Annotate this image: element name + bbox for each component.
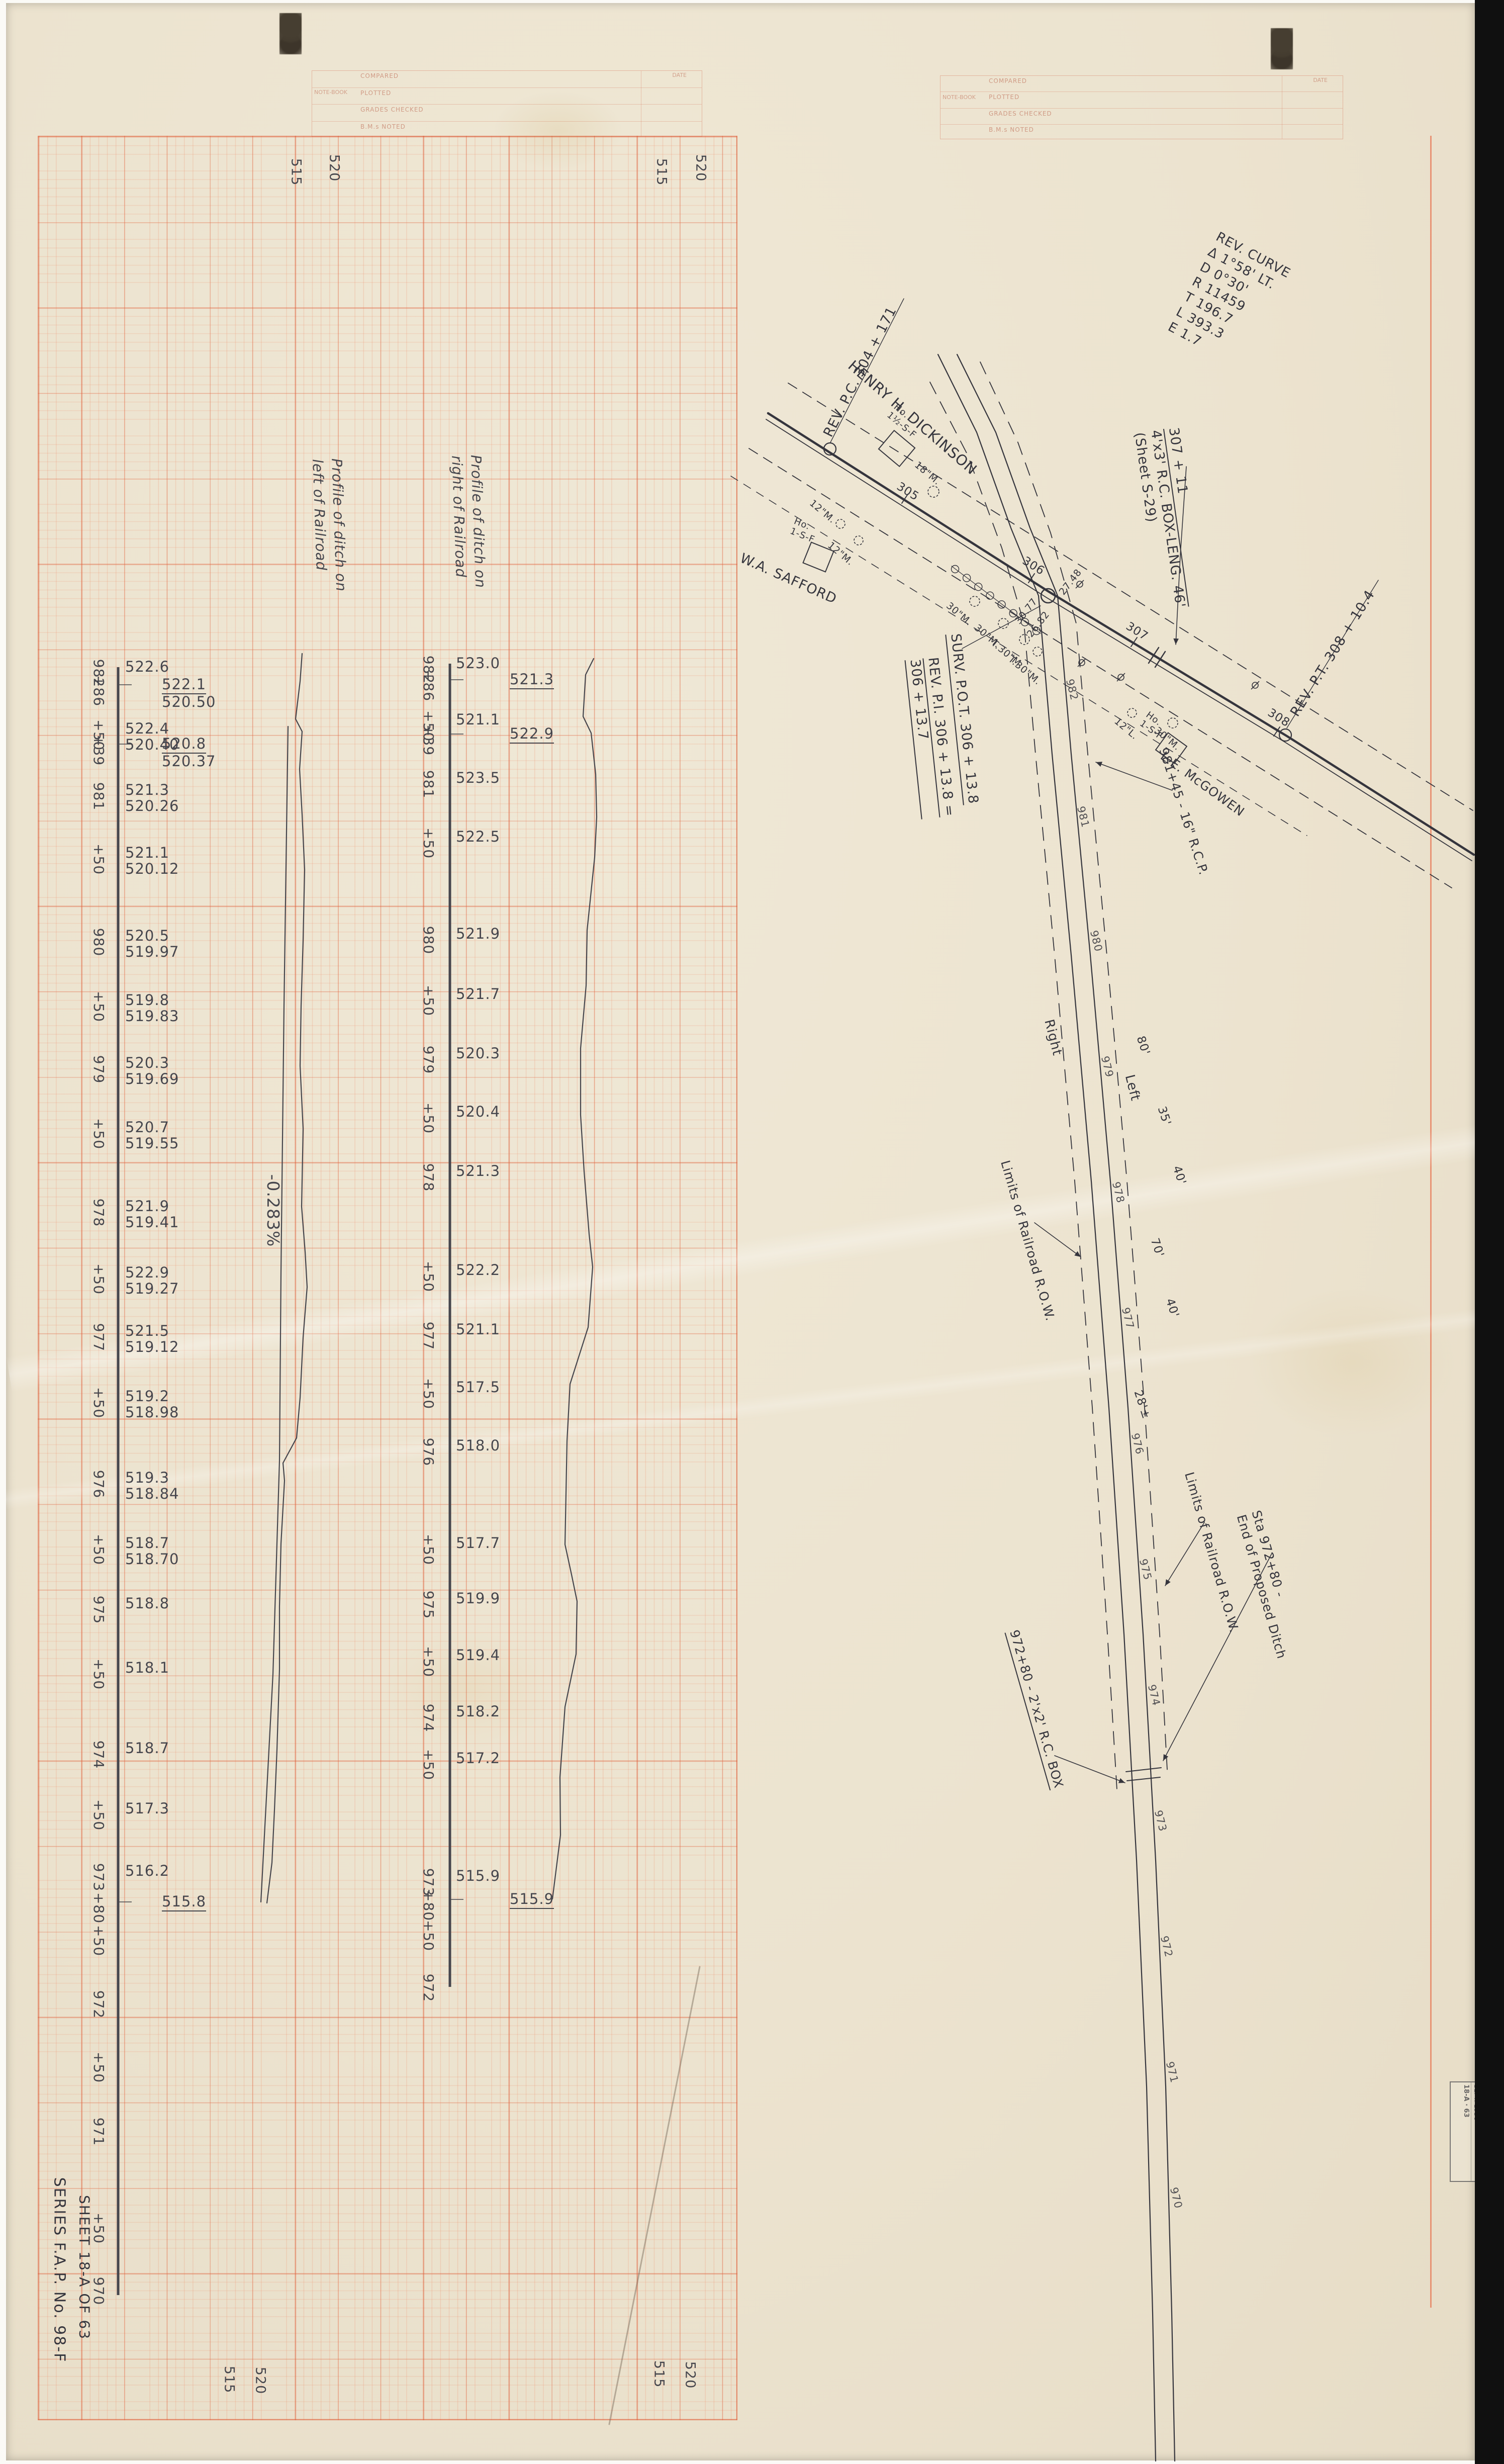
rr-track-main (768, 413, 1474, 855)
elevation-values-right: 515.9 (510, 1891, 554, 1909)
station-label-right: 977 (420, 1322, 437, 1350)
elevation-values-right: 520.4 (456, 1104, 500, 1120)
station-label-right: 978 (420, 1163, 437, 1192)
elevation-values-left: 520.7519.55 (125, 1120, 179, 1152)
elevation-values-right: 520.3 (456, 1046, 500, 1062)
station-label-left: 978 (90, 1199, 107, 1227)
ground-profile-line-right (552, 659, 597, 1899)
drawing-layer (0, 0, 1504, 2464)
elevation-values-left: 516.2 (125, 1863, 169, 1879)
station-label-right: +50 (420, 1749, 437, 1780)
station-label-right: +50 (420, 1920, 437, 1951)
elevation-values-left: 520.8520.37 (162, 736, 216, 770)
elevation-values-right: 521.1 (456, 1322, 500, 1338)
elevation-values-right: 517.5 (456, 1380, 500, 1396)
station-label-right: +39 (420, 724, 437, 756)
station-label-left: +50 (90, 1534, 107, 1565)
elevation-values-left: 519.3518.84 (125, 1470, 179, 1502)
station-label-right: +50 (420, 985, 437, 1016)
station-label-right: +80 (420, 1890, 437, 1921)
elevation-values-left: 521.3520.26 (125, 782, 179, 814)
culvert-tick-2 (1155, 652, 1165, 667)
station-label-left: +50 (90, 1925, 107, 1956)
elevation-values-right: 515.9 (456, 1868, 500, 1884)
station-label-right: 976 (420, 1438, 437, 1466)
elevation-values-right: 522.2 (456, 1262, 500, 1279)
station-label-left: 979 (90, 1055, 107, 1083)
sheet-number-label: SHEET 18-A OF 63 (76, 2195, 93, 2340)
culvert-tick-1 (1149, 648, 1159, 663)
station-label-left: +50 (90, 1387, 107, 1418)
station-label-left: 971 (90, 2118, 107, 2146)
profile-title-right: Profile of ditch onright of Railroad (447, 454, 490, 589)
tree-symbol (970, 596, 980, 606)
elevation-scale-label: 515 (288, 158, 304, 186)
elevation-values-left: 518.7518.70 (125, 1535, 179, 1568)
station-label-right: 980 (420, 926, 437, 954)
elevation-values-left: 521.9519.41 (125, 1199, 179, 1231)
elevation-scale-label: 515 (221, 2366, 237, 2394)
station-label-left: +50 (90, 2052, 107, 2083)
profile-title-left: Profile of ditch onleft of Railroad (308, 458, 351, 593)
station-label-left: +50 (90, 1799, 107, 1831)
station-label-left: +50 (90, 991, 107, 1022)
station-label-left: +50 (90, 1263, 107, 1295)
arrow-rcbox (1055, 1756, 1125, 1783)
elevation-scale-label: 520 (326, 154, 342, 182)
station-label-right: +50 (420, 828, 437, 859)
elevation-values-left: 521.1520.12 (125, 845, 179, 877)
elevation-values-left: 518.8 (125, 1596, 169, 1612)
station-label-right: +50 (420, 1103, 437, 1134)
elevation-values-right: 521.1 (456, 712, 500, 728)
elevation-values-right: 523.0 (456, 656, 500, 672)
elevation-scale-label: 520 (692, 154, 709, 182)
station-label-left: 973 (90, 1863, 107, 1891)
elevation-values-left: 517.3 (125, 1801, 169, 1817)
station-label-left: +50 (90, 844, 107, 875)
hedge-bump (986, 592, 994, 599)
tree-symbol (928, 486, 939, 497)
rr-row-sw-1 (749, 448, 1452, 888)
elevation-values-right: 517.2 (456, 1751, 500, 1767)
ground-profile-line-left (267, 654, 307, 1903)
tree-symbol (836, 519, 845, 528)
station-label-left: 981 (90, 782, 107, 810)
hwy-edge-left (938, 354, 1156, 2461)
elevation-values-right: 519.9 (456, 1591, 500, 1607)
station-label-right: +50 (420, 1534, 437, 1565)
station-label-right: +50 (420, 1378, 437, 1409)
arrow-limits-2-head (1165, 1579, 1171, 1586)
station-label-left: 974 (90, 1741, 107, 1769)
scan-edge (1475, 0, 1504, 2464)
elevation-values-left: 519.8519.83 (125, 992, 179, 1025)
arrow-culvert-head (1173, 638, 1179, 645)
station-label-right: +50 (420, 1261, 437, 1292)
tree-symbol (1127, 708, 1137, 717)
arrow-rcbox-head (1118, 1778, 1125, 1783)
proposed-grade-line-left (261, 726, 288, 1902)
elevation-values-right: 518.2 (456, 1704, 500, 1720)
station-label-left: 980 (90, 928, 107, 956)
arrow-limits-1 (1035, 1223, 1081, 1257)
tree-symbol (1019, 634, 1029, 645)
elevation-values-right: 523.5 (456, 770, 500, 786)
station-label-left: 976 (90, 1470, 107, 1498)
tree-symbol (854, 536, 863, 545)
station-label-left: +80 (90, 1892, 107, 1924)
elevation-values-right: 517.7 (456, 1535, 500, 1552)
station-label-right: 979 (420, 1046, 437, 1074)
stamp-row: 18-A · 63 (1461, 2082, 1471, 2181)
arrow-rcp-head (1096, 762, 1102, 767)
elevation-values-left: 519.2518.98 (125, 1389, 179, 1421)
elevation-values-left: 520.5519.97 (125, 928, 179, 960)
elevation-values-right: 518.0 (456, 1438, 500, 1454)
station-label-right: +50 (420, 1646, 437, 1677)
station-label-left: 972 (90, 1990, 107, 2019)
elevation-values-right: 522.5 (456, 829, 500, 845)
elevation-scale-label: 515 (650, 2360, 667, 2388)
station-label-left: +86 (90, 675, 107, 706)
elevation-scale-label: 520 (682, 2361, 698, 2389)
crease-line (609, 1967, 700, 2424)
elevation-values-left: 521.5519.12 (125, 1323, 179, 1355)
station-label-right: 975 (420, 1591, 437, 1619)
elevation-values-right: 519.4 (456, 1648, 500, 1664)
elevation-values-right: 521.7 (456, 986, 500, 1002)
station-label-right: 974 (420, 1704, 437, 1732)
elevation-values-left: 522.1520.50 (162, 677, 216, 710)
station-label-right: 972 (420, 1974, 437, 2002)
tree-symbol (1033, 647, 1042, 656)
elevation-values-left: 518.1 (125, 1660, 169, 1676)
station-label-left: +50 (90, 1659, 107, 1690)
series-label: SERIES F.A.P. No. 98-F (51, 2177, 68, 2363)
station-label-left: 977 (90, 1323, 107, 1351)
rr-track-inner (766, 419, 1472, 861)
elevation-values-right: 521.3 (510, 672, 554, 689)
elevation-scale-label: 520 (252, 2367, 268, 2395)
elevation-values-left: 515.8 (162, 1894, 206, 1911)
scanned-sheet: DATENOTE-BOOKCOMPAREDPLOTTEDGRADES CHECK… (0, 0, 1504, 2464)
hedge-bump (975, 583, 982, 591)
station-label-right: 981 (420, 770, 437, 798)
elevation-values-left: 522.9519.27 (125, 1265, 179, 1297)
station-label-left: 975 (90, 1596, 107, 1624)
elevation-values-left: 518.7 (125, 1741, 169, 1757)
elevation-values-right: 522.9 (510, 726, 554, 744)
tree-symbol (998, 618, 1008, 628)
elevation-values-left: 522.6 (125, 659, 169, 675)
hwy-dash-left (930, 382, 1117, 1790)
elevation-values-right: 521.9 (456, 926, 500, 942)
elevation-values-left: 520.3519.69 (125, 1055, 179, 1087)
station-label-left: +39 (90, 735, 107, 766)
grade-percent-label: -0.283% (263, 1174, 283, 1247)
station-label-right: +86 (420, 670, 437, 701)
elevation-values-right: 521.3 (456, 1163, 500, 1179)
elevation-scale-label: 515 (653, 158, 670, 186)
station-label-left: +50 (90, 1118, 107, 1149)
